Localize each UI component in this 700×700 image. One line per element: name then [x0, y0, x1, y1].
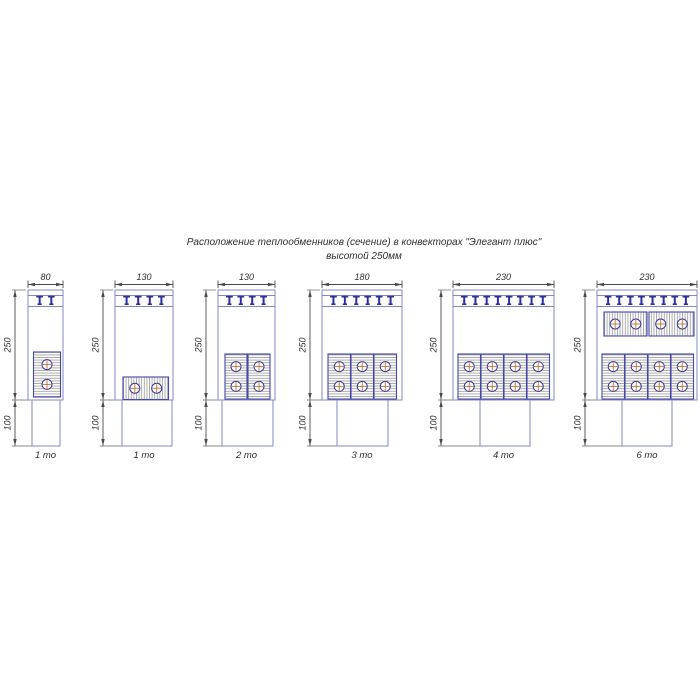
width-dimension-label: 230 — [495, 272, 511, 282]
tube-section-icon — [654, 381, 664, 391]
diagram-variant-4to-230: 2302501004 то — [429, 272, 555, 461]
diagram-variant-1to-130: 1302501001 то — [91, 272, 174, 461]
tube-section-icon — [610, 319, 620, 329]
tube-section-icon — [487, 381, 497, 391]
dimension-arrow-icon — [308, 393, 311, 400]
tube-section-icon — [380, 381, 390, 391]
dimension-arrow-icon — [13, 290, 16, 297]
tube-section-icon — [677, 362, 687, 372]
tube-section-icon — [42, 360, 52, 370]
tube-section-icon — [357, 362, 367, 372]
height-main-dimension-label: 250 — [3, 337, 13, 353]
tube-section-icon — [533, 362, 543, 372]
variant-label: 4 то — [493, 450, 514, 461]
heat-exchanger-block — [604, 312, 647, 336]
dimension-arrow-icon — [13, 439, 16, 446]
dimension-arrow-icon — [101, 290, 104, 297]
dimension-arrow-icon — [204, 400, 207, 407]
heat-exchanger-block — [34, 352, 61, 397]
diagram-variant-3to-180: 1802501003 то — [298, 272, 403, 461]
height-main-dimension-label: 250 — [91, 337, 101, 353]
heat-exchanger-block — [602, 354, 625, 399]
heat-exchanger-block — [481, 354, 504, 399]
drawing-title-line2: высотой 250мм — [326, 251, 402, 262]
dimension-arrow-icon — [583, 439, 586, 446]
variant-label: 6 то — [636, 450, 657, 461]
tube-section-icon — [677, 381, 687, 391]
dimension-arrow-icon — [101, 400, 104, 407]
width-dimension-label: 130 — [239, 272, 254, 282]
dimension-arrow-icon — [439, 290, 442, 297]
dimension-arrow-icon — [322, 283, 329, 286]
drawing-canvas: Расположение теплообменников (сечение) в… — [0, 0, 700, 700]
heat-exchanger-block — [671, 354, 694, 399]
tube-section-icon — [677, 319, 687, 329]
tube-section-icon — [608, 362, 618, 372]
dimension-arrow-icon — [308, 290, 311, 297]
diagrams-group: 802501001 то1302501001 то1302501002 то18… — [3, 272, 698, 461]
tube-section-icon — [656, 319, 666, 329]
dimension-arrow-icon — [583, 393, 586, 400]
dimension-arrow-icon — [101, 439, 104, 446]
base-duct — [622, 400, 672, 446]
tube-section-icon — [631, 381, 641, 391]
dimension-arrow-icon — [453, 283, 460, 286]
variant-label: 1 то — [133, 450, 154, 461]
dimension-arrow-icon — [56, 283, 63, 286]
tube-section-icon — [654, 362, 664, 372]
tube-section-icon — [487, 362, 497, 372]
heat-exchanger-block — [328, 354, 351, 399]
dimension-arrow-icon — [204, 439, 207, 446]
height-main-dimension-label: 250 — [298, 337, 308, 353]
tube-section-icon — [608, 381, 618, 391]
dimension-arrow-icon — [597, 283, 604, 286]
heat-exchanger-block — [527, 354, 550, 399]
tube-section-icon — [231, 381, 241, 391]
dimension-arrow-icon — [204, 290, 207, 297]
tube-section-icon — [380, 362, 390, 372]
tube-section-icon — [464, 381, 474, 391]
diagram-variant-1to-80: 802501001 то — [3, 272, 64, 461]
tube-section-icon — [152, 383, 162, 393]
tube-section-icon — [357, 381, 367, 391]
dimension-arrow-icon — [308, 400, 311, 407]
heat-exchanger-block — [649, 312, 694, 336]
tube-section-icon — [631, 362, 641, 372]
tube-section-icon — [334, 381, 344, 391]
dimension-arrow-icon — [28, 283, 35, 286]
dimension-arrow-icon — [218, 283, 225, 286]
dimension-arrow-icon — [395, 283, 402, 286]
technical-drawing: Расположение теплообменников (сечение) в… — [0, 0, 700, 700]
dimension-arrow-icon — [13, 400, 16, 407]
width-dimension-label: 130 — [136, 272, 151, 282]
tube-section-icon — [334, 362, 344, 372]
heat-exchanger-block — [504, 354, 527, 399]
tube-section-icon — [631, 319, 641, 329]
width-dimension-label: 180 — [354, 272, 369, 282]
dimension-arrow-icon — [166, 283, 173, 286]
height-base-dimension-label: 100 — [3, 415, 13, 430]
tube-section-icon — [510, 381, 520, 391]
height-main-dimension-label: 250 — [429, 337, 439, 353]
height-main-dimension-label: 250 — [194, 337, 204, 353]
dimension-arrow-icon — [583, 290, 586, 297]
base-duct — [337, 400, 388, 446]
tube-section-icon — [533, 381, 543, 391]
diagram-variant-2to-130: 1302501002 то — [194, 272, 276, 461]
dimension-arrow-icon — [268, 283, 275, 286]
heat-exchanger-block — [123, 377, 169, 400]
heat-exchanger-block — [248, 354, 270, 399]
dimension-arrow-icon — [13, 393, 16, 400]
heat-exchanger-block — [374, 354, 397, 399]
dimension-arrow-icon — [583, 400, 586, 407]
diagram-variant-6to-230: 2302501006 то — [573, 272, 698, 461]
dimension-arrow-icon — [439, 393, 442, 400]
width-dimension-label: 80 — [40, 272, 50, 282]
variant-label: 2 то — [235, 450, 257, 461]
tube-section-icon — [510, 362, 520, 372]
dimension-arrow-icon — [101, 393, 104, 400]
base-duct — [222, 400, 273, 446]
base-duct — [480, 400, 530, 446]
variant-label: 3 то — [351, 450, 372, 461]
drawing-title-line1: Расположение теплообменников (сечение) в… — [187, 236, 542, 248]
base-duct — [122, 400, 172, 446]
dimension-arrow-icon — [308, 439, 311, 446]
height-base-dimension-label: 100 — [429, 415, 439, 430]
height-base-dimension-label: 100 — [194, 415, 204, 430]
tube-section-icon — [42, 379, 52, 389]
heat-exchanger-block — [225, 354, 247, 399]
height-base-dimension-label: 100 — [298, 415, 308, 430]
height-base-dimension-label: 100 — [91, 415, 101, 430]
tube-section-icon — [254, 362, 264, 372]
width-dimension-label: 230 — [638, 272, 654, 282]
dimension-arrow-icon — [690, 283, 697, 286]
height-base-dimension-label: 100 — [573, 415, 583, 430]
tube-section-icon — [231, 362, 241, 372]
variant-label: 1 то — [35, 450, 56, 461]
heat-exchanger-block — [648, 354, 671, 399]
tube-section-icon — [130, 383, 140, 393]
dimension-arrow-icon — [115, 283, 122, 286]
heat-exchanger-block — [625, 354, 648, 399]
dimension-arrow-icon — [439, 439, 442, 446]
base-duct — [32, 400, 60, 446]
dimension-arrow-icon — [204, 393, 207, 400]
height-main-dimension-label: 250 — [573, 337, 583, 353]
tube-section-icon — [254, 381, 264, 391]
dimension-arrow-icon — [439, 400, 442, 407]
heat-exchanger-block — [351, 354, 374, 399]
tube-section-icon — [464, 362, 474, 372]
dimension-arrow-icon — [547, 283, 554, 286]
heat-exchanger-block — [458, 354, 481, 399]
